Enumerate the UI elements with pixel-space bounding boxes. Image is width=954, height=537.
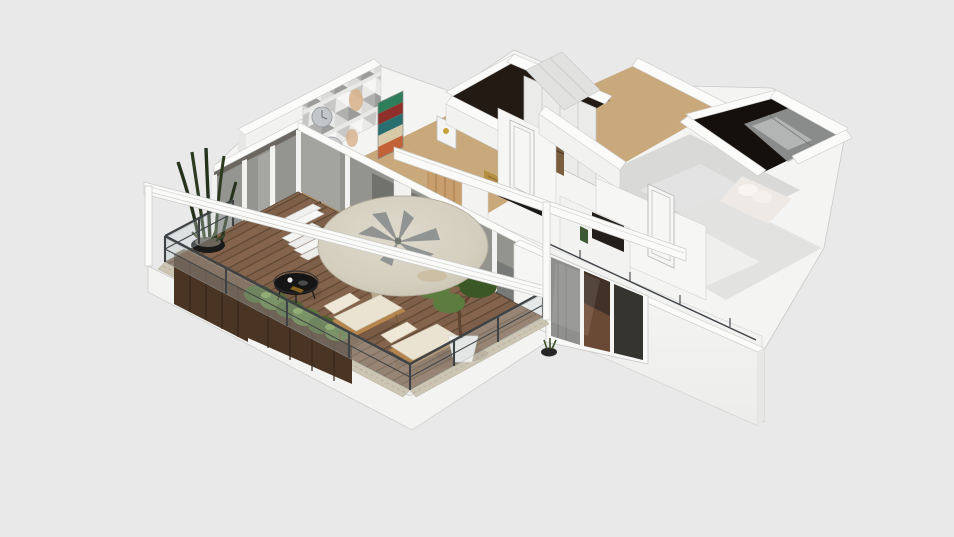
roof-post-left <box>145 186 152 266</box>
floorplan-3d-viewport[interactable] <box>0 0 954 537</box>
roof-post-corner <box>543 202 550 320</box>
seat-cushion <box>417 270 447 282</box>
floorplan-scene <box>0 0 954 537</box>
wall-decor-tan <box>349 89 363 111</box>
